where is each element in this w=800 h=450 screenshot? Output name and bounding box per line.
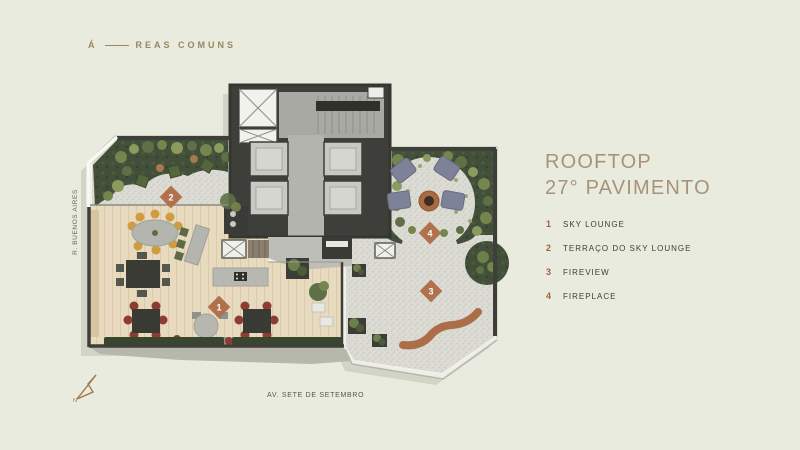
svg-text:3: 3 [428, 287, 433, 297]
compass-icon: N [73, 375, 96, 404]
slide: Á REAS COMUNS ROOFTOP 27° PAVIMENTO 1 SK… [0, 0, 800, 450]
street-label-bottom: AV. SETE DE SETEMBRO [267, 392, 364, 399]
svg-text:4: 4 [427, 229, 432, 239]
svg-text:1: 1 [216, 303, 221, 313]
compass-north-label: N [73, 398, 77, 404]
street-label-left: R. BUENOS AIRES [72, 189, 79, 255]
floor-plan: 1 2 3 4 R. BUENOS AIRES AV. SETE DE SETE… [0, 0, 800, 450]
building-core [230, 85, 390, 237]
svg-text:2: 2 [168, 193, 173, 203]
elevator-shaft-icon [239, 89, 277, 143]
